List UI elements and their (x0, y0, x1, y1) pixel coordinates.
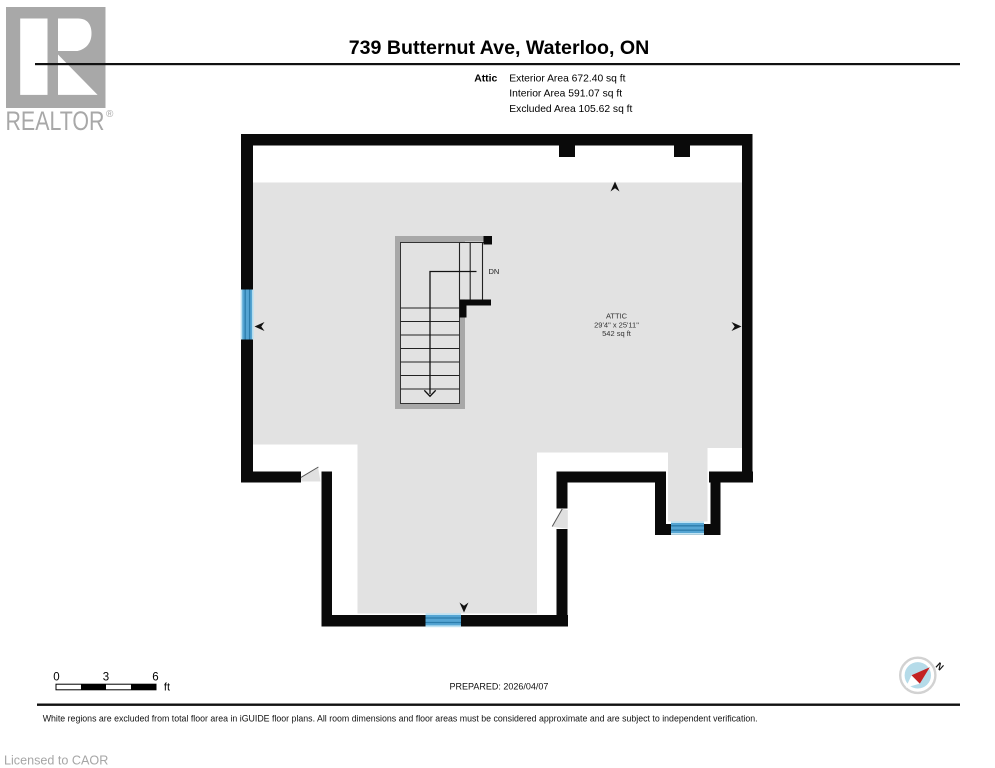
svg-text:Attic: Attic (474, 73, 497, 84)
svg-text:®: ® (106, 109, 114, 120)
svg-text:Interior Area 591.07 sq ft: Interior Area 591.07 sq ft (509, 89, 622, 100)
svg-text:REALTOR: REALTOR (6, 106, 105, 136)
svg-text:DN: DN (489, 267, 500, 276)
svg-text:6: 6 (152, 672, 158, 684)
svg-text:ft: ft (164, 682, 170, 694)
svg-text:Licensed to CAOR: Licensed to CAOR (4, 754, 108, 768)
svg-text:0: 0 (53, 672, 59, 684)
svg-text:739 Butternut Ave, Waterloo, O: 739 Butternut Ave, Waterloo, ON (349, 37, 649, 59)
svg-text:Excluded Area 105.62 sq ft: Excluded Area 105.62 sq ft (509, 104, 632, 115)
svg-text:3: 3 (103, 672, 109, 684)
svg-text:White regions are excluded fro: White regions are excluded from total fl… (43, 714, 758, 724)
svg-text:Exterior Area 672.40 sq ft: Exterior Area 672.40 sq ft (509, 73, 625, 84)
svg-text:ATTIC: ATTIC (606, 312, 628, 321)
svg-text:542 sq ft: 542 sq ft (602, 329, 632, 338)
svg-text:PREPARED: 2026/04/07: PREPARED: 2026/04/07 (450, 682, 549, 692)
